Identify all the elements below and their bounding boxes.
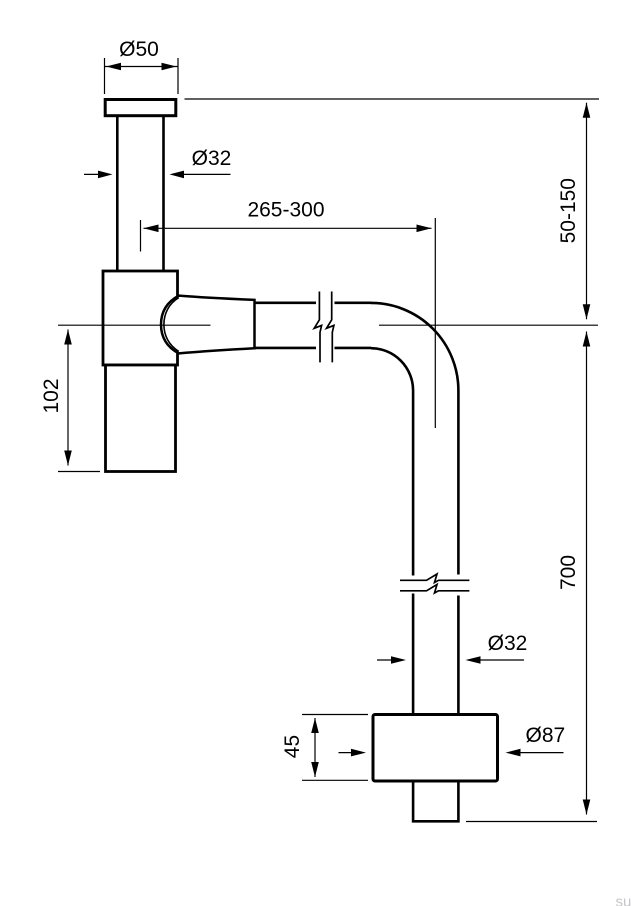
svg-text:700: 700 [557, 555, 580, 590]
svg-text:265-300: 265-300 [247, 199, 324, 222]
svg-text:su: su [616, 894, 631, 906]
svg-text:Ø50: Ø50 [119, 38, 159, 61]
svg-text:Ø32: Ø32 [192, 147, 232, 170]
svg-text:Ø32: Ø32 [488, 632, 528, 655]
svg-text:45: 45 [281, 735, 304, 758]
svg-text:50-150: 50-150 [557, 178, 580, 243]
svg-text:Ø87: Ø87 [526, 724, 566, 747]
svg-text:102: 102 [40, 378, 63, 413]
